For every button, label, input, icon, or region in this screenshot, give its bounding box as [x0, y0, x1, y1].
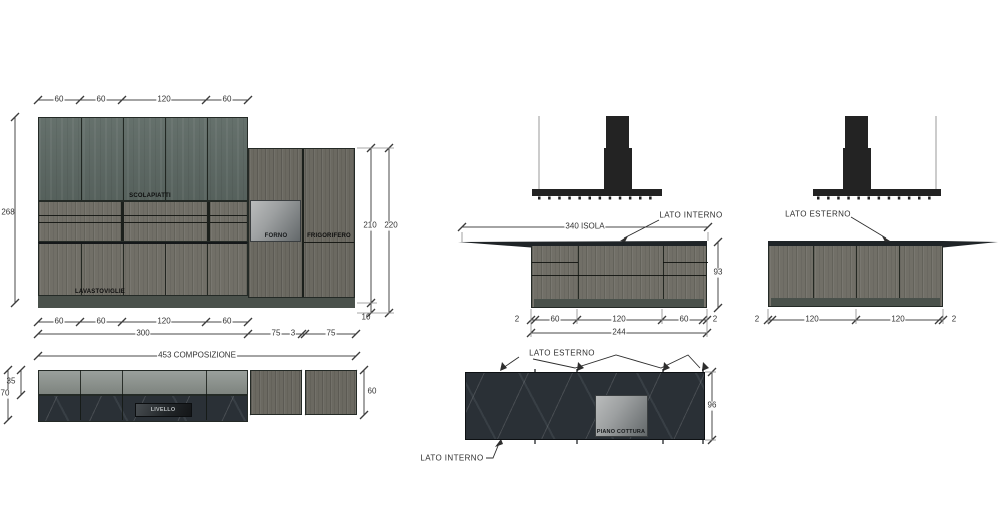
island-column-divider	[578, 246, 579, 307]
dim-tall-height: 210	[362, 222, 377, 231]
dim-island: 2	[712, 316, 718, 325]
island-drawer-line	[532, 275, 706, 276]
livello-label: LIVELLO	[151, 407, 176, 413]
piano-cottura-label: PIANO COTTURA	[597, 429, 645, 435]
plan-main-worktop-strip	[38, 370, 248, 395]
dim-island: 60	[679, 316, 690, 325]
dim-bottom: 60	[54, 318, 65, 327]
plan-island-counter	[465, 372, 705, 440]
dim-plan-island-depth: 96	[707, 402, 718, 411]
wall-cabinet-door-divider	[81, 118, 82, 200]
lato-interno-callout: LATO INTERNO	[659, 211, 722, 220]
kickboard	[38, 296, 248, 308]
plan-tall-unit	[250, 370, 302, 415]
island-esterno-body	[768, 246, 943, 307]
open-shelf-band	[38, 201, 248, 242]
dim-island-total: 244	[611, 329, 626, 338]
hood-esterno-chimney-top	[845, 116, 868, 149]
wall-cabinet-door-divider	[165, 118, 166, 200]
hood-interno-chimney	[604, 148, 632, 189]
dim-island: 60	[550, 316, 561, 325]
lavastoviglie-label: LAVASTOVIGLIE	[75, 289, 125, 295]
wall-cabinets	[38, 117, 248, 201]
dim-composition-total: 453 COMPOSIZIONE	[157, 352, 237, 361]
island-plinth	[534, 299, 704, 307]
island-drawer-line	[532, 262, 578, 263]
dim-island: 120	[611, 316, 626, 325]
island-door-divider	[856, 246, 857, 306]
wall-cabinet-door-divider	[123, 118, 124, 200]
hood-interno-chimney-top	[606, 116, 629, 149]
dim-island-height: 93	[713, 269, 724, 278]
dim-height-total: 268	[0, 209, 15, 218]
dim-tall-depth: 60	[367, 388, 378, 397]
wall-cabinet-door-divider	[207, 118, 208, 200]
dim-top: 60	[222, 96, 233, 105]
plan-tall-unit	[305, 370, 357, 415]
island-door-divider	[813, 246, 814, 306]
hood-esterno-chimney	[843, 148, 871, 189]
dim-counter-depth: 70	[0, 390, 10, 399]
shelf-line	[39, 222, 247, 223]
hood-interno-body	[532, 189, 662, 196]
dim-island: 2	[754, 316, 760, 325]
scolapiatti-label: SCOLAPIATTI	[129, 193, 171, 199]
hood-esterno-body	[813, 189, 941, 196]
forno-label: FORNO	[265, 233, 288, 239]
dim-bottom: 60	[222, 318, 233, 327]
shelf-line	[39, 215, 247, 216]
dim-island: 2	[951, 316, 957, 325]
kickboard-tall	[248, 298, 355, 308]
plan-lato-esterno-callout: LATO ESTERNO	[529, 349, 595, 358]
base-door-divider	[207, 244, 208, 295]
dim-gap: 3	[290, 330, 296, 339]
shelf-segment-divider	[207, 202, 210, 241]
tall-unit-gap	[302, 149, 304, 297]
dim-overall-height: 220	[383, 222, 398, 231]
dim-isola-width: 340 ISOLA	[564, 223, 605, 232]
base-door-divider	[81, 244, 82, 295]
kitchen-technical-drawing: SCOLAPIATTI LAVASTOVIGLIE FORNO FRIGORIF…	[0, 0, 1000, 523]
lato-esterno-callout: LATO ESTERNO	[785, 210, 851, 219]
plan-main-divider	[80, 370, 81, 420]
island-interno-body	[531, 246, 707, 308]
island-column-divider	[663, 246, 664, 307]
island-drawer-line	[663, 262, 708, 263]
dim-tall-column: 75	[271, 330, 282, 339]
dim-strip-depth: 35	[6, 378, 17, 387]
base-door-divider	[123, 244, 124, 295]
frigorifero-label: FRIGORIFERO	[307, 233, 351, 239]
base-door-divider	[165, 244, 166, 295]
dim-island: 120	[890, 316, 905, 325]
dim-bottom: 60	[96, 318, 107, 327]
fridge-door-split	[304, 242, 354, 243]
plan-lato-interno-callout: LATO INTERNO	[420, 454, 483, 463]
plan-main-divider	[122, 370, 123, 420]
dim-top: 60	[96, 96, 107, 105]
dim-island: 2	[514, 316, 520, 325]
dim-bottom: 120	[156, 318, 171, 327]
dim-plinth-height: 10	[361, 314, 372, 323]
dim-top: 60	[54, 96, 65, 105]
base-cabinets	[38, 242, 248, 296]
shelf-segment-divider	[121, 202, 124, 241]
dim-top: 120	[156, 96, 171, 105]
dim-island: 120	[804, 316, 819, 325]
dim-base-run: 300	[135, 330, 150, 339]
island-door-divider	[899, 246, 900, 306]
plan-main-divider	[206, 370, 207, 420]
island-plinth	[771, 298, 940, 306]
dim-tall-column: 75	[326, 330, 337, 339]
